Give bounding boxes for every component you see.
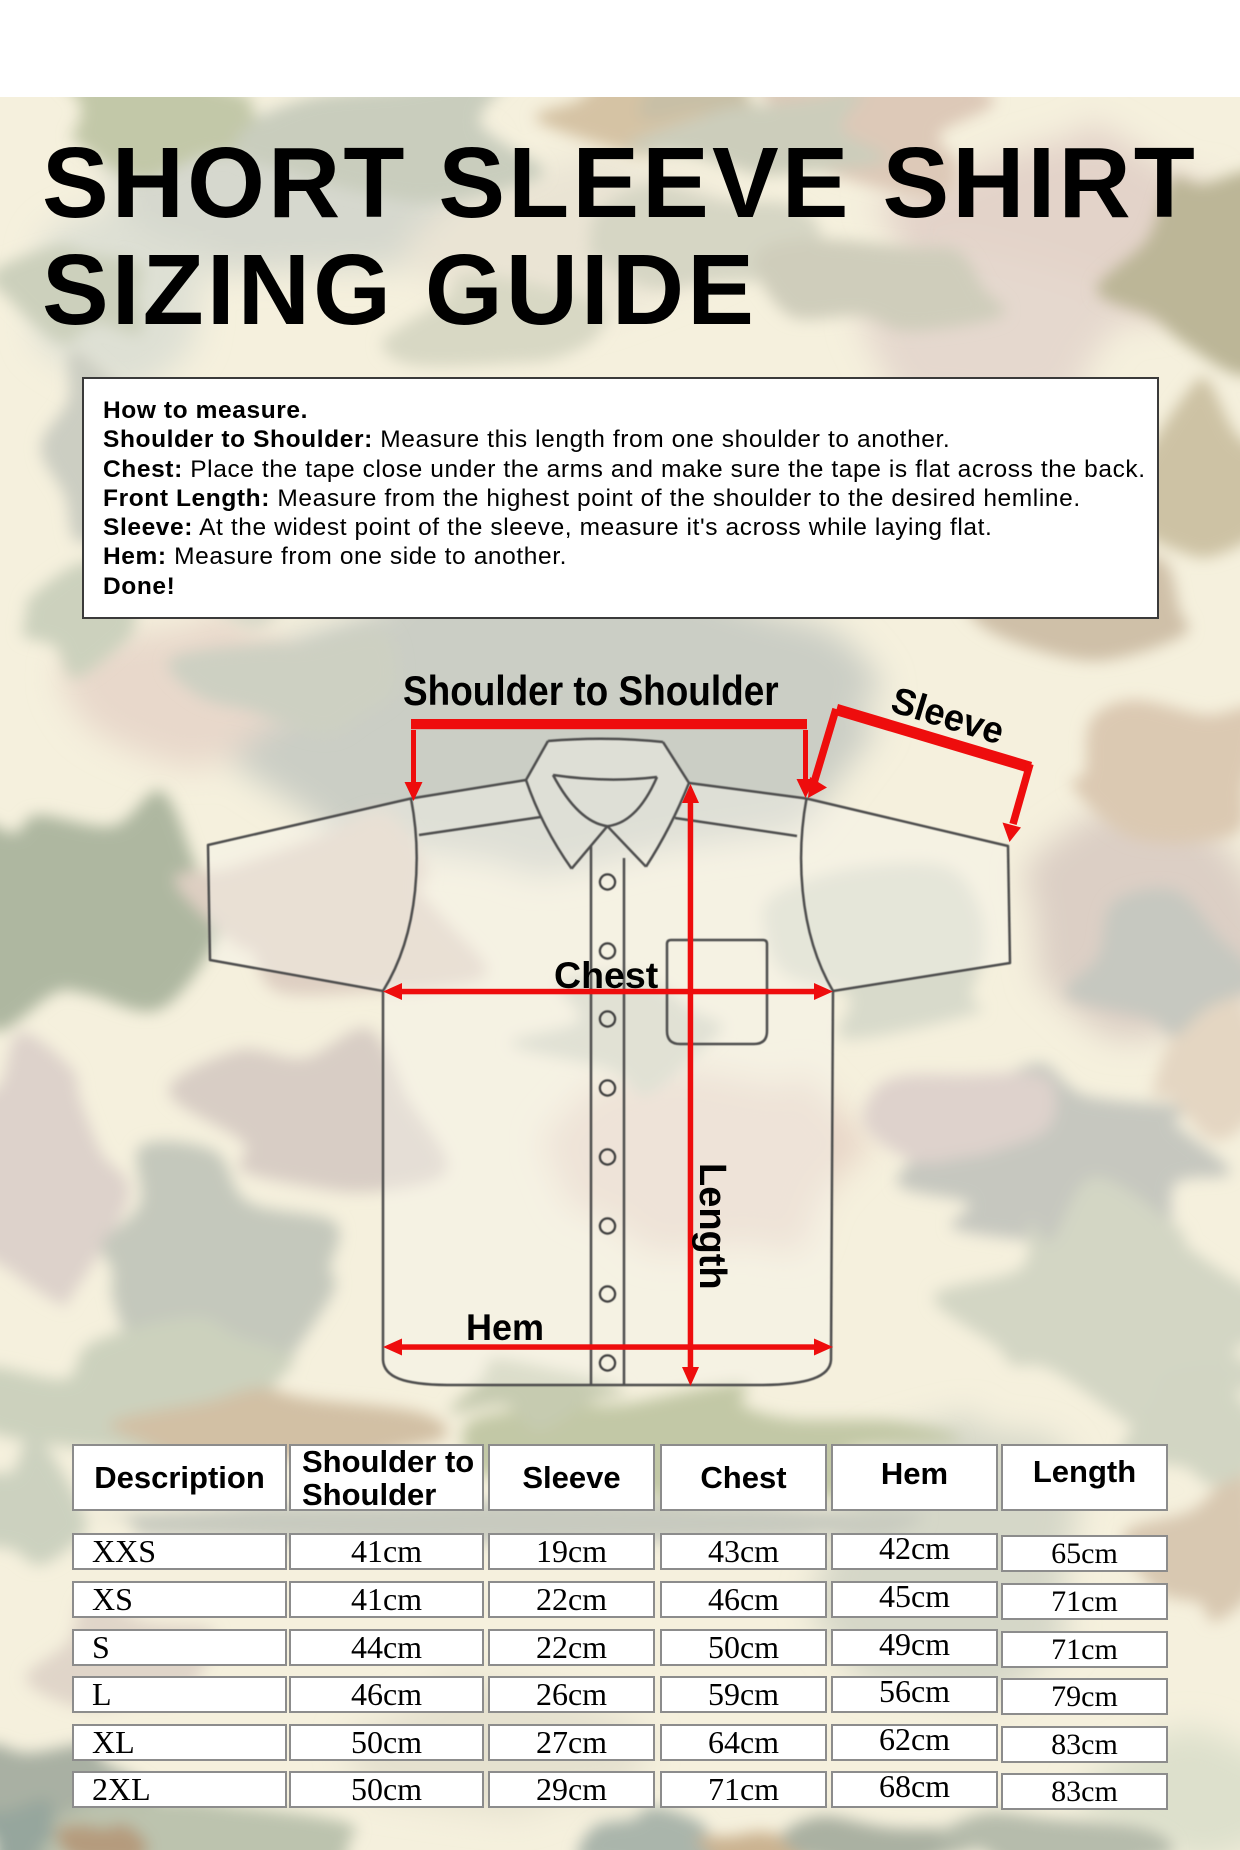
- svg-text:Chest: Chest: [554, 954, 659, 996]
- svg-text:Hem: Hem: [466, 1306, 544, 1348]
- svg-text:Shoulder to Shoulder: Shoulder to Shoulder: [403, 668, 779, 715]
- svg-text:Length: Length: [691, 1163, 733, 1290]
